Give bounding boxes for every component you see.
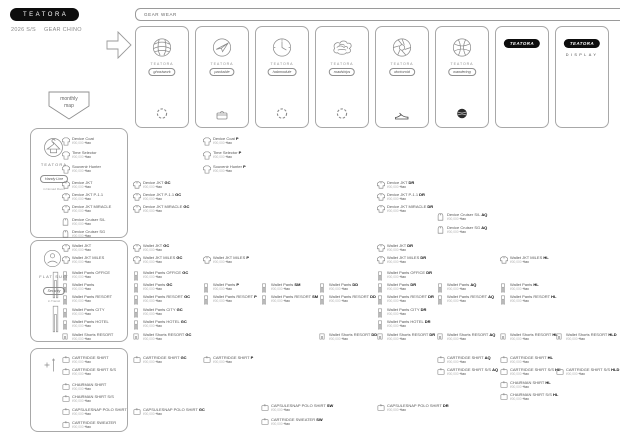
- product-item: CARTRIDGE SHIRT S/S HL¥00,000 +tax: [510, 368, 560, 377]
- vest-icon: [62, 230, 69, 238]
- product-item: Device JKT P-1.1¥00,000 +tax: [72, 193, 103, 202]
- product-item: Wallet Pants RESORT HL¥00,000 +tax: [510, 295, 556, 304]
- product-item: Device Cruiser SG AQ¥00,000 +tax: [447, 226, 487, 235]
- product-item: Device JKT MIRACLE DR¥00,000 +tax: [387, 205, 433, 214]
- product-item: Time Selector P¥00,000 +tax: [213, 151, 241, 160]
- jacket-icon: [133, 205, 141, 213]
- product-price: ¥00,000 +tax: [72, 142, 94, 146]
- fabric-code: GC: [183, 204, 189, 209]
- gear-ring-icon: [276, 107, 289, 120]
- pants-icon: [319, 283, 325, 293]
- jacket-icon: [62, 181, 70, 189]
- pants-icon: [133, 271, 139, 281]
- product-item: Wallet Pants OFFICE¥00,000 +tax: [72, 271, 110, 280]
- product-price: ¥00,000 +tax: [510, 361, 553, 365]
- product-price: ¥00,000 +tax: [213, 170, 246, 174]
- coat-icon: [62, 151, 70, 160]
- shorts-icon: [556, 333, 562, 340]
- shirt-icon: [62, 395, 70, 402]
- category-banner-label: GEAR WEAR: [144, 12, 177, 17]
- pants-icon: [133, 283, 139, 293]
- card-brand-label: TEATORA: [436, 62, 488, 66]
- pants-icon: [62, 320, 68, 330]
- jacket-icon: [377, 181, 385, 189]
- product-item: Wallet Shorts RESORT DR¥00,000 +tax: [387, 333, 435, 342]
- fabric-code: DR: [419, 192, 425, 197]
- product-item: Wallet Pants RESORT GC¥00,000 +tax: [143, 295, 190, 304]
- pants-icon: [133, 308, 139, 318]
- product-item: Device JKT MIRACLE¥00,000 +tax: [72, 205, 111, 214]
- dial-scribble-icon: [271, 36, 294, 59]
- fabric-code: DR: [409, 180, 415, 185]
- sneaker-icon: [395, 110, 410, 120]
- product-item: CAPSULESNAP POLO SHIRT GC¥00,000 +tax: [143, 408, 205, 417]
- badge-line2: map: [64, 103, 74, 109]
- person-doodle-icon: [42, 248, 63, 269]
- fabric-card-6: TEATORAwandering: [435, 26, 489, 128]
- product-item: Device JKT P-1.1 GC¥00,000 +tax: [143, 193, 181, 202]
- product-price: ¥00,000 +tax: [143, 249, 169, 253]
- fabric-code: DR: [425, 319, 431, 324]
- product-price: ¥00,000 +tax: [72, 249, 91, 253]
- shirt-icon: [377, 404, 385, 411]
- product-price: ¥00,000 +tax: [72, 313, 105, 317]
- product-price: ¥00,000 +tax: [447, 218, 487, 222]
- product-price: ¥00,000 +tax: [387, 409, 449, 413]
- season-label: 2026 S/S: [11, 27, 36, 33]
- shirt-icon: [437, 356, 445, 363]
- card-brand-label: TEATORA: [136, 62, 188, 66]
- product-item: CARTRIDGE SHIRT S/S¥00,000 +tax: [72, 368, 116, 377]
- product-item: CARTRIDGE SWEATER SW¥00,000 +tax: [271, 418, 323, 427]
- fabric-tag: packable: [209, 68, 234, 76]
- product-price: ¥00,000 +tax: [271, 300, 318, 304]
- fabric-code: P: [236, 136, 239, 141]
- shirt-icon: [500, 393, 508, 400]
- fabric-code: GC: [185, 332, 191, 337]
- box-caption: in Transit: [32, 299, 76, 303]
- pants-icon: [377, 320, 383, 330]
- shirt-icon: [500, 356, 508, 363]
- product-item: Wallet JKT MILES GC¥00,000 +tax: [143, 256, 182, 265]
- product-price: ¥00,000 +tax: [510, 398, 558, 402]
- product-item: CARTRIDGE SWEATER¥00,000 +tax: [72, 421, 116, 430]
- coat-icon: [62, 165, 70, 174]
- product-item: Wallet Pants RESORT DD¥00,000 +tax: [329, 295, 376, 304]
- product-price: ¥00,000 +tax: [271, 409, 333, 413]
- fabric-code: AQ: [481, 225, 487, 230]
- fabric-code: DR: [421, 307, 427, 312]
- pants-icon: [62, 295, 68, 305]
- product-price: ¥00,000 +tax: [143, 198, 181, 202]
- product-item: Wallet Pants OFFICE DR¥00,000 +tax: [387, 271, 432, 280]
- product-item: Wallet Pants RESORT¥00,000 +tax: [72, 295, 112, 304]
- product-item: Time Selector¥00,000 +tax: [72, 151, 97, 160]
- product-price: ¥00,000 +tax: [387, 288, 416, 292]
- shirt-icon: [62, 383, 70, 390]
- product-item: Wallet JKT DR¥00,000 +tax: [387, 244, 413, 253]
- product-item: Device JKT¥00,000 +tax: [72, 181, 92, 190]
- product-item: CARTRIDGE SHIRT S/S HLD¥00,000 +tax: [566, 368, 619, 377]
- product-price: ¥00,000 +tax: [72, 235, 105, 239]
- card-brand-label: TEATORA: [376, 62, 428, 66]
- gear-ring-icon: [156, 107, 169, 120]
- fabric-tag: wandering: [448, 68, 476, 76]
- fabric-code: HL: [551, 294, 556, 299]
- shorts-icon: [319, 333, 325, 340]
- fabric-code: AQ: [485, 355, 491, 360]
- fabric-code: DR: [427, 204, 433, 209]
- monthly-map-badge: monthly map: [44, 91, 94, 121]
- product-item: Wallet Pants RESORT DR¥00,000 +tax: [387, 295, 434, 304]
- fabric-code: GC: [163, 243, 169, 248]
- jacket-icon: [377, 205, 385, 213]
- pants-icon: [133, 320, 139, 330]
- product-price: ¥00,000 +tax: [213, 156, 241, 160]
- product-price: ¥00,000 +tax: [447, 231, 487, 235]
- product-item: CHAIRMAN SHIRT¥00,000 +tax: [72, 383, 106, 392]
- product-item: Device JKT GC¥00,000 +tax: [143, 181, 171, 190]
- plane-scribble-icon: [211, 36, 234, 59]
- product-price: ¥00,000 +tax: [566, 373, 619, 377]
- product-price: ¥00,000 +tax: [143, 288, 172, 292]
- coat-icon: [203, 151, 211, 160]
- product-item: Wallet JKT MILES HL¥00,000 +tax: [510, 256, 549, 265]
- product-item: Wallet Shorts RESORT HL¥00,000 +tax: [510, 333, 558, 342]
- product-item: CAPSULESNAP POLO SHIRT¥00,000 +tax: [72, 408, 127, 417]
- product-item: Wallet Pants SM¥00,000 +tax: [271, 283, 300, 292]
- product-price: ¥00,000 +tax: [72, 400, 114, 404]
- pants-icon: [62, 271, 68, 281]
- jacket-icon: [62, 244, 70, 252]
- aperture-scribble-icon: [391, 36, 414, 59]
- fabric-code: DR: [428, 294, 434, 299]
- product-item: Wallet Shorts RESORT GC¥00,000 +tax: [143, 333, 191, 342]
- shirt-icon: [500, 381, 508, 388]
- shirt-icon: [62, 356, 70, 363]
- product-item: Wallet Pants¥00,000 +tax: [72, 283, 94, 292]
- product-item: Wallet Pants CITY¥00,000 +tax: [72, 308, 105, 317]
- fabric-tag: roadships: [329, 68, 355, 76]
- fabric-code: AQ: [489, 332, 495, 337]
- product-price: ¥00,000 +tax: [143, 276, 188, 280]
- shorts-icon: [377, 333, 383, 340]
- fabric-card-1: TEATORAghostwork: [135, 26, 189, 128]
- product-price: ¥00,000 +tax: [566, 338, 617, 342]
- cloud-scribble-icon: [331, 36, 354, 59]
- product-price: ¥00,000 +tax: [143, 313, 183, 317]
- product-item: Device JKT DR¥00,000 +tax: [387, 181, 414, 190]
- fabric-card-8: TEATORADISPLAY: [555, 26, 609, 128]
- shirt-icon: [133, 356, 141, 363]
- fabric-code: SM: [312, 294, 318, 299]
- product-item: Wallet Pants RESORT P¥00,000 +tax: [213, 295, 257, 304]
- fabric-code: GC: [165, 180, 171, 185]
- product-price: ¥00,000 +tax: [72, 325, 109, 329]
- coat-icon: [203, 137, 211, 146]
- fabric-code: GC: [181, 355, 187, 360]
- product-item: CHAIRMAN SHIRT HL¥00,000 +tax: [510, 381, 551, 390]
- jacket-icon: [203, 256, 211, 264]
- product-price: ¥00,000 +tax: [447, 300, 494, 304]
- product-price: ¥00,000 +tax: [143, 338, 191, 342]
- pants-icon: [377, 295, 383, 305]
- product-price: ¥00,000 +tax: [510, 300, 556, 304]
- product-item: CARTRIDGE SHIRT P¥00,000 +tax: [213, 356, 253, 365]
- fabric-code: P: [239, 150, 242, 155]
- pants-icon: [437, 295, 443, 305]
- product-item: Wallet Shorts RESORT AQ¥00,000 +tax: [447, 333, 495, 342]
- fabric-code: HLD: [611, 367, 619, 372]
- product-price: ¥00,000 +tax: [510, 288, 539, 292]
- fabric-code: DD: [370, 294, 376, 299]
- fabric-card-5: TEATORAdoctoroid: [375, 26, 429, 128]
- product-price: ¥00,000 +tax: [329, 288, 358, 292]
- fabric-code: SM: [294, 282, 300, 287]
- product-item: CARTRIDGE SHIRT S/S AQ¥00,000 +tax: [447, 368, 498, 377]
- fabric-code: AQ: [492, 367, 498, 372]
- product-price: ¥00,000 +tax: [213, 261, 249, 265]
- shirt-icon: [62, 421, 70, 428]
- jacket-icon: [62, 205, 70, 213]
- shorts-icon: [437, 333, 443, 340]
- shirt-icon: [133, 408, 141, 415]
- shirt-icon: [62, 368, 70, 375]
- product-item: CHAIRMAN SHIRT S/S¥00,000 +tax: [72, 395, 114, 404]
- jacket-icon: [500, 256, 508, 264]
- product-item: CAPSULESNAP POLO SHIRT SW¥00,000 +tax: [271, 404, 333, 413]
- pants-icon: [261, 283, 267, 293]
- product-item: CAPSULESNAP POLO SHIRT DR¥00,000 +tax: [387, 404, 449, 413]
- product-item: Wallet Pants RESORT AQ¥00,000 +tax: [447, 295, 494, 304]
- product-price: ¥00,000 +tax: [387, 249, 413, 253]
- pants-icon: [62, 308, 68, 318]
- product-item: Wallet Pants DR¥00,000 +tax: [387, 283, 416, 292]
- product-price: ¥00,000 +tax: [447, 361, 491, 365]
- product-price: ¥00,000 +tax: [143, 186, 171, 190]
- product-price: ¥00,000 +tax: [447, 338, 495, 342]
- product-price: ¥00,000 +tax: [72, 300, 112, 304]
- pants-icon: [319, 295, 325, 305]
- shirt-icon: [500, 368, 508, 375]
- product-price: ¥00,000 +tax: [143, 261, 182, 265]
- product-item: CHAIRMAN SHIRT S/S HL¥00,000 +tax: [510, 393, 558, 402]
- product-price: ¥00,000 +tax: [387, 300, 434, 304]
- yarn-scribble-icon: [451, 36, 474, 59]
- product-item: Wallet Pants P¥00,000 +tax: [213, 283, 239, 292]
- product-price: ¥00,000 +tax: [143, 361, 187, 365]
- fabric-code: AQ: [470, 282, 476, 287]
- shirt-icon: [437, 368, 445, 375]
- product-price: ¥00,000 +tax: [213, 300, 257, 304]
- shirt-icon: [62, 408, 70, 415]
- product-price: ¥00,000 +tax: [143, 300, 190, 304]
- product-item: Wallet Pants HL¥00,000 +tax: [510, 283, 539, 292]
- fabric-card-3: TEATORAhabmodule: [255, 26, 309, 128]
- product-price: ¥00,000 +tax: [329, 338, 377, 342]
- fabric-tag: doctoroid: [389, 68, 415, 76]
- card-brand-label: TEATORA: [196, 62, 248, 66]
- shirt-icon: [261, 404, 269, 411]
- jacket-icon: [62, 256, 70, 264]
- fabric-code: HL: [553, 392, 558, 397]
- fabric-code: P: [236, 282, 239, 287]
- product-item: CARTRIDGE SHIRT AQ¥00,000 +tax: [447, 356, 491, 365]
- product-price: ¥00,000 +tax: [72, 261, 104, 265]
- product-price: ¥00,000 +tax: [72, 288, 94, 292]
- jacket-icon: [133, 181, 141, 189]
- coat-icon: [203, 165, 211, 174]
- product-price: ¥00,000 +tax: [72, 338, 113, 342]
- fabric-code: GC: [199, 407, 205, 412]
- fabric-tag: ghostwork: [148, 68, 175, 76]
- product-item: Wallet JKT MILES¥00,000 +tax: [72, 256, 104, 265]
- product-item: Device Cruiser S/L¥00,000 +tax: [72, 218, 105, 227]
- product-price: ¥00,000 +tax: [72, 170, 101, 174]
- product-price: ¥00,000 +tax: [72, 198, 103, 202]
- product-price: ¥00,000 +tax: [387, 338, 435, 342]
- product-price: ¥00,000 +tax: [72, 373, 116, 377]
- pants-icon: [133, 295, 139, 305]
- product-price: ¥00,000 +tax: [447, 373, 498, 377]
- card-logo-pill: TEATORA: [564, 39, 600, 48]
- fabric-code: SW: [327, 403, 333, 408]
- shirt-icon: [556, 368, 564, 375]
- product-item: Wallet Shorts RESORT¥00,000 +tax: [72, 333, 113, 342]
- hanger-plus-icon: [42, 356, 58, 374]
- fabric-code: DR: [410, 282, 416, 287]
- product-price: ¥00,000 +tax: [387, 325, 431, 329]
- product-price: ¥00,000 +tax: [72, 413, 127, 417]
- product-item: Wallet Pants CITY DR¥00,000 +tax: [387, 308, 426, 317]
- product-item: CARTRIDGE SHIRT HL¥00,000 +tax: [510, 356, 553, 365]
- product-price: ¥00,000 +tax: [387, 261, 426, 265]
- pants-icon: [377, 271, 383, 281]
- product-price: ¥00,000 +tax: [72, 223, 105, 227]
- product-price: ¥00,000 +tax: [387, 210, 433, 214]
- pants-silhouette-icon: [52, 305, 59, 333]
- category-banner: GEAR WEAR: [135, 8, 620, 21]
- fabric-code: P: [246, 255, 249, 260]
- fabric-code: GC: [175, 192, 181, 197]
- product-item: Wallet Pants HOTEL GC¥00,000 +tax: [143, 320, 187, 329]
- product-price: ¥00,000 +tax: [387, 276, 432, 280]
- product-price: ¥00,000 +tax: [447, 288, 476, 292]
- vest-icon: [437, 226, 444, 234]
- arrow-right-icon: [106, 27, 132, 63]
- product-item: Device Cruiser SG¥00,000 +tax: [72, 230, 105, 239]
- product-item: Wallet Pants GC¥00,000 +tax: [143, 283, 172, 292]
- product-price: ¥00,000 +tax: [72, 276, 110, 280]
- fabric-card-4: TEATORAroadships: [315, 26, 369, 128]
- fabric-code: GC: [182, 270, 188, 275]
- fabric-code: GC: [181, 319, 187, 324]
- product-item: Wallet Pants HOTEL DR¥00,000 +tax: [387, 320, 431, 329]
- shirt-icon: [261, 418, 269, 425]
- jacket-icon: [133, 256, 141, 264]
- fabric-code: DD: [352, 282, 358, 287]
- product-price: ¥00,000 +tax: [143, 210, 189, 214]
- pants-icon: [203, 295, 209, 305]
- card-brand-label: TEATORA: [256, 62, 308, 66]
- fabric-code: DR: [429, 332, 435, 337]
- pants-silhouette-icon: [52, 271, 59, 299]
- gear-ring-icon: [336, 107, 349, 120]
- product-price: ¥00,000 +tax: [72, 156, 97, 160]
- fabric-tag: habmodule: [268, 68, 297, 76]
- vest-icon: [437, 213, 444, 221]
- jacket-icon: [377, 193, 385, 201]
- jacket-icon: [62, 193, 70, 201]
- product-price: ¥00,000 +tax: [271, 423, 323, 427]
- product-price: ¥00,000 +tax: [143, 325, 187, 329]
- fabric-code: DR: [420, 255, 426, 260]
- pants-icon: [500, 283, 506, 293]
- product-item: Device Coat¥00,000 +tax: [72, 137, 94, 146]
- product-price: ¥00,000 +tax: [72, 388, 106, 392]
- product-price: ¥00,000 +tax: [510, 373, 560, 377]
- fabric-code: GC: [176, 255, 182, 260]
- coat-icon: [62, 137, 70, 146]
- pants-icon: [500, 295, 506, 305]
- product-item: Wallet Pants AQ¥00,000 +tax: [447, 283, 476, 292]
- brand-logo: TEATORA: [10, 8, 79, 21]
- product-price: ¥00,000 +tax: [213, 142, 239, 146]
- pants-icon: [377, 308, 383, 318]
- product-item: Wallet JKT MILES DR¥00,000 +tax: [387, 256, 426, 265]
- jacket-icon: [133, 193, 141, 201]
- product-item: Wallet Pants CITY GC¥00,000 +tax: [143, 308, 183, 317]
- fabric-code: P: [254, 294, 257, 299]
- product-price: ¥00,000 +tax: [387, 313, 426, 317]
- pants-icon: [437, 283, 443, 293]
- product-price: ¥00,000 +tax: [213, 361, 253, 365]
- product-price: ¥00,000 +tax: [271, 288, 300, 292]
- fabric-code: AQ: [488, 294, 494, 299]
- product-item: Wallet Pants RESORT SM¥00,000 +tax: [271, 295, 318, 304]
- product-item: Device Cruiser S/L AQ¥00,000 +tax: [447, 213, 487, 222]
- product-item: Wallet JKT GC¥00,000 +tax: [143, 244, 169, 253]
- badge-line1: monthly: [60, 96, 78, 102]
- product-item: Souvenir Hunter¥00,000 +tax: [72, 165, 101, 174]
- fabric-code: GC: [184, 294, 190, 299]
- product-item: Device JKT MIRACLE GC¥00,000 +tax: [143, 205, 189, 214]
- fabric-code: SW: [316, 417, 322, 422]
- fabric-code: DR: [426, 270, 432, 275]
- product-price: ¥00,000 +tax: [213, 288, 239, 292]
- display-label: DISPLAY: [556, 53, 608, 57]
- product-item: Wallet JKT¥00,000 +tax: [72, 244, 91, 253]
- globe-scribble-icon: [151, 36, 174, 59]
- product-item: Wallet Pants DD¥00,000 +tax: [329, 283, 358, 292]
- fabric-card-7: TEATORA: [495, 26, 549, 128]
- fabric-code: HL: [543, 255, 548, 260]
- pants-icon: [62, 283, 68, 293]
- product-item: CARTRIDGE SHIRT GC¥00,000 +tax: [143, 356, 187, 365]
- product-item: Device Coat P¥00,000 +tax: [213, 137, 239, 146]
- shorts-icon: [62, 333, 68, 340]
- product-price: ¥00,000 +tax: [510, 386, 551, 390]
- product-price: ¥00,000 +tax: [387, 198, 425, 202]
- fabric-card-2: TEATORApackable: [195, 26, 249, 128]
- product-price: ¥00,000 +tax: [329, 300, 376, 304]
- jacket-icon: [377, 244, 385, 252]
- basket-icon: [216, 109, 229, 120]
- product-price: ¥00,000 +tax: [72, 210, 111, 214]
- product-price: ¥00,000 +tax: [510, 338, 558, 342]
- product-price: ¥00,000 +tax: [510, 261, 549, 265]
- fabric-code: GC: [177, 307, 183, 312]
